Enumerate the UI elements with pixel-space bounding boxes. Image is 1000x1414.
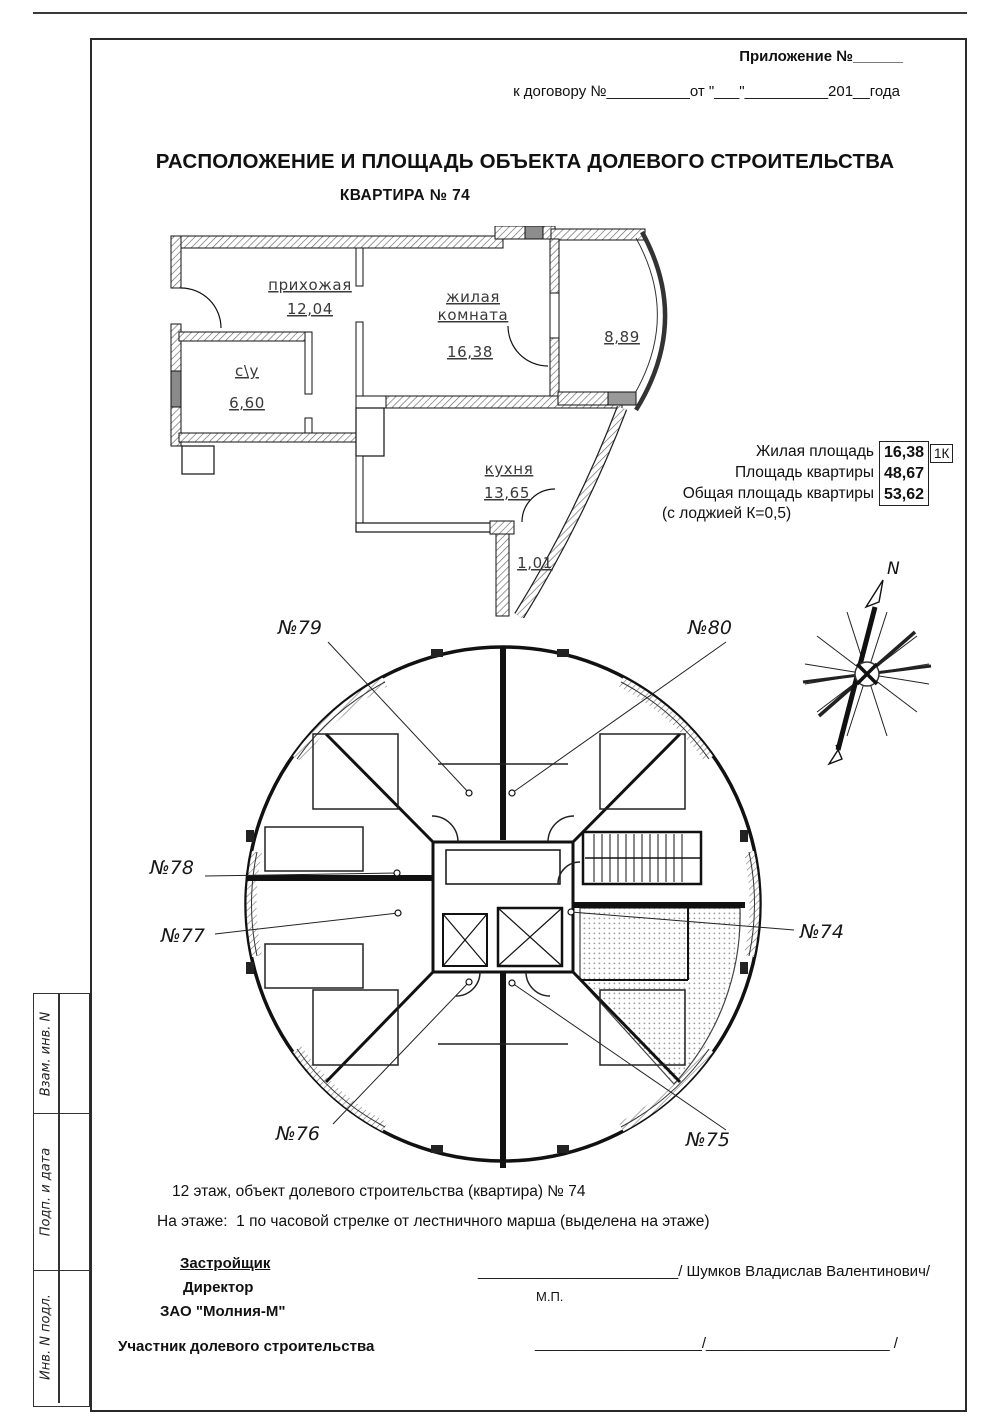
unit-label-74: №74	[799, 921, 844, 943]
developer-name: / Шумков Владислав Валентинович/	[678, 1263, 930, 1280]
appendix-number-line: Приложение №______	[739, 48, 903, 65]
developer-title: Директор	[183, 1279, 253, 1296]
room-label-living-1: жилая	[446, 288, 500, 306]
contract-line: к договору №__________от "___"__________…	[513, 83, 900, 100]
side-cell-podp: Подп. и дата	[34, 1114, 89, 1271]
compass-north-label: N	[887, 559, 900, 579]
seal-placeholder: М.П.	[536, 1289, 563, 1304]
participant-label: Участник долевого строительства	[118, 1338, 374, 1355]
room-area-balcony: 1,01	[517, 554, 553, 572]
apartment-type-badge: 1К	[930, 444, 953, 463]
apartment-floor-plan: прихожая 12,04 жилая комната 16,38 с\у 6…	[170, 226, 690, 618]
stairwell	[583, 832, 701, 884]
room-label-hallway: прихожая	[268, 276, 352, 294]
page-top-border	[33, 12, 967, 14]
developer-signature-blank: ________________________	[478, 1263, 678, 1280]
side-label-inv: Инв. N подл.	[39, 1294, 54, 1380]
summary-note: (с лоджией К=0,5)	[662, 505, 791, 523]
side-cell-vzam: Взам. инв. N	[34, 994, 89, 1114]
page-subtitle: КВАРТИРА № 74	[170, 187, 640, 205]
summary-value-apartment: 48,67	[884, 463, 924, 484]
gost-side-column: Взам. инв. N Подп. и дата Инв. N подл.	[33, 993, 90, 1407]
developer-signature-line: ________________________/ Шумков Владисл…	[478, 1263, 930, 1280]
summary-label-living: Жилая площадь	[646, 441, 874, 462]
unit-label-77: №77	[160, 925, 205, 947]
room-area-loggia: 8,89	[604, 328, 640, 346]
room-area-kitchen: 13,65	[484, 484, 530, 502]
developer-company: ЗАО "Молния-М"	[160, 1303, 285, 1320]
page-title: РАСПОЛОЖЕНИЕ И ПЛОЩАДЬ ОБЪЕКТА ДОЛЕВОГО …	[120, 150, 930, 174]
floor-note: 12 этаж, объект долевого строительства (…	[172, 1183, 585, 1201]
room-area-living: 16,38	[447, 343, 493, 361]
position-note: На этаже: 1 по часовой стрелке от лестни…	[157, 1213, 710, 1231]
unit-label-79: №79	[277, 617, 322, 639]
room-area-bath: 6,60	[229, 394, 265, 412]
document-page: Приложение №______ к договору №_________…	[0, 0, 1000, 1414]
room-label-living-2: комната	[438, 306, 509, 324]
summary-values-box: 16,38 48,67 53,62	[879, 441, 929, 506]
summary-label-total: Общая площадь квартиры	[646, 483, 874, 504]
side-label-podp: Подп. и дата	[39, 1148, 54, 1237]
unit-label-80: №80	[687, 617, 732, 639]
room-area-hallway: 12,04	[287, 300, 333, 318]
participant-signature-line: ____________________/___________________…	[535, 1335, 898, 1352]
unit-label-76: №76	[275, 1123, 320, 1145]
side-cell-inv: Инв. N подл.	[34, 1271, 89, 1403]
developer-heading: Застройщик	[180, 1255, 270, 1272]
unit-label-75: №75	[685, 1129, 730, 1151]
room-label-kitchen: кухня	[485, 460, 534, 478]
summary-value-living: 16,38	[884, 442, 924, 463]
room-label-bath: с\у	[235, 362, 259, 380]
side-label-vzam: Взам. инв. N	[39, 1011, 54, 1095]
summary-label-apartment: Площадь квартиры	[646, 462, 874, 483]
unit-label-78: №78	[149, 857, 194, 879]
area-summary: Жилая площадь Площадь квартиры Общая пло…	[646, 441, 953, 506]
building-floor-plan: №79 №80 №78 №77 №74 №76 №75	[128, 612, 872, 1190]
elevator-core	[433, 842, 573, 972]
summary-value-total: 53,62	[884, 484, 924, 505]
